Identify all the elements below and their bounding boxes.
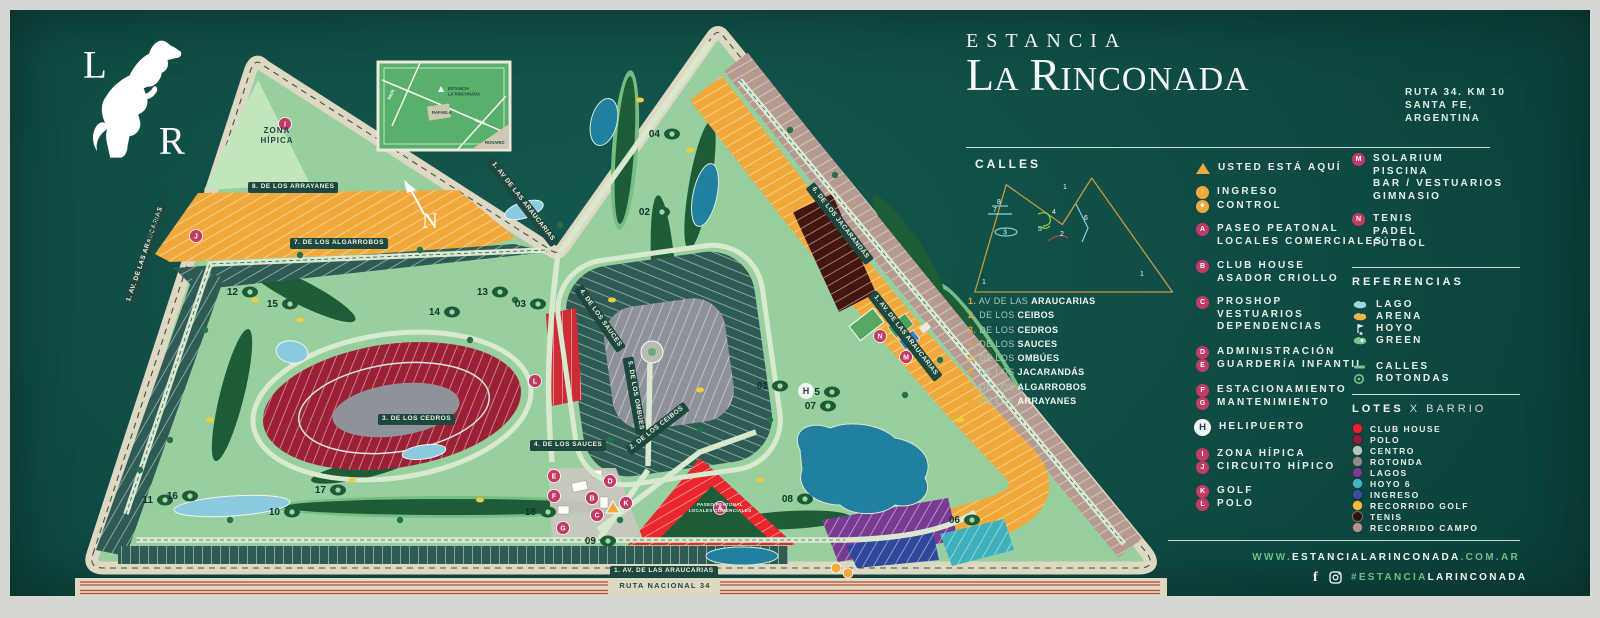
legend-usted: USTED ESTÁ AQUÍ [1196, 162, 1342, 175]
you-are-here-icon [1196, 163, 1210, 174]
legend-administracion: D ADMINISTRACIÓN [1196, 346, 1336, 359]
helipuerto-icon: H [1194, 419, 1211, 436]
street-item: 4. DE LOS SAUCES [968, 337, 1096, 351]
legend-guarderia: E GUARDERÍA INFANTIL [1196, 359, 1365, 372]
svg-text:1: 1 [1063, 184, 1067, 191]
ref-arena: ARENA [1352, 311, 1423, 324]
color-dot [1352, 434, 1363, 445]
marker-k-icon: K [1196, 485, 1209, 498]
legend-mantenimiento: G MANTENIMIENTO [1196, 397, 1330, 410]
legend-clubhouse: B CLUB HOUSEASADOR CRIOLLO [1196, 260, 1339, 285]
legend-polo: L POLO [1196, 498, 1254, 511]
control-icon: ★ [1196, 200, 1209, 213]
street-item: 7. DE LOS ALGARROBOS [968, 380, 1096, 394]
marker-n-icon: N [1352, 213, 1365, 226]
lote-rotonda: ROTONDA [1352, 456, 1423, 467]
street-item: 8. DE LOS ARRAYANES [968, 394, 1096, 408]
green-icon [1352, 336, 1368, 346]
ref-calles: CALLES [1352, 361, 1429, 374]
lote-recorrido-golf: RECORRIDO GOLF [1352, 500, 1469, 511]
divider [1352, 267, 1520, 268]
svg-text:6: 6 [1084, 215, 1088, 222]
color-dot [1352, 500, 1363, 511]
marker-j-icon: J [1196, 461, 1209, 474]
sand-icon [1352, 312, 1368, 322]
brand-eyebrow: ESTANCIA [966, 30, 1250, 53]
color-dot [1352, 478, 1363, 489]
poster-frame: 01 02 03 04 05 06 07 08 09 10 11 12 13 1… [0, 0, 1600, 618]
flag-icon [1352, 323, 1368, 335]
legend-solarium: M SOLARIUMPISCINABAR / VESTUARIOSGIMNASI… [1352, 153, 1503, 203]
poster: 01 02 03 04 05 06 07 08 09 10 11 12 13 1… [10, 10, 1590, 596]
svg-text:2: 2 [1060, 231, 1064, 238]
marker-g-icon: G [1196, 397, 1209, 410]
street-list: 1. AV DE LAS ARAUCARIAS 2. DE LOS CEIBOS… [968, 294, 1096, 408]
street-item: 1. AV DE LAS ARAUCARIAS [968, 294, 1096, 308]
color-dot [1352, 511, 1363, 522]
legend-proshop: C PROSHOPVESTUARIOSDEPENDENCIAS [1196, 296, 1323, 334]
ref-hoyo: HOYO [1352, 323, 1414, 336]
street-dash-icon [1352, 363, 1368, 371]
calles-title: CALLES [975, 157, 1041, 171]
ref-rotondas: ROTONDAS [1352, 373, 1451, 386]
marker-e-icon: E [1196, 359, 1209, 372]
legend-golf: K GOLF [1196, 485, 1254, 498]
marker-a-icon: A [1196, 223, 1209, 236]
lote-recorrido-campo: RECORRIDO CAMPO [1352, 522, 1478, 533]
street-item: 3. DE LOS CEDROS [968, 323, 1096, 337]
marker-l-icon: L [1196, 498, 1209, 511]
svg-text:4: 4 [1052, 209, 1056, 216]
svg-text:7: 7 [993, 207, 997, 214]
svg-text:8: 8 [997, 199, 1001, 206]
instagram-icon [1329, 571, 1342, 584]
divider [966, 147, 1490, 148]
lote-lagos: LAGOS [1352, 467, 1408, 478]
address-block: RUTA 34. KM 10SANTA FE,ARGENTINA [1405, 86, 1506, 125]
marker-f-icon: F [1196, 384, 1209, 397]
svg-text:1: 1 [982, 279, 986, 286]
lote-clubhouse: CLUB HOUSE [1352, 423, 1441, 434]
legend-tenis: N TENISPADELFÚTBOL [1352, 213, 1427, 251]
divider [1168, 540, 1520, 541]
marker-d-icon: D [1196, 346, 1209, 359]
lotes-title: LOTES X BARRIO [1352, 403, 1486, 415]
street-item: 5. DE LOS OMBÚES [968, 351, 1096, 365]
brand-block: ESTANCIA LARINCONADA [966, 30, 1250, 99]
lote-hoyo6: HOYO 6 [1352, 478, 1411, 489]
legend-circuito-hipico: J CIRCUITO HÍPICO [1196, 461, 1335, 474]
color-dot [1352, 467, 1363, 478]
street-item: 2. DE LOS CEIBOS [968, 308, 1096, 322]
legend-ingreso: ↑ INGRESO [1196, 186, 1279, 199]
color-dot [1352, 445, 1363, 456]
brand-title: LARINCONADA [966, 55, 1250, 99]
svg-text:1: 1 [1140, 271, 1144, 278]
marker-b-icon: B [1196, 260, 1209, 273]
divider [1352, 394, 1520, 395]
legend-panel: ESTANCIA LARINCONADA RUTA 34. KM 10SANTA… [10, 10, 1590, 596]
marker-i-icon: I [1196, 448, 1209, 461]
social-row: f #ESTANCIALARINCONADA [1313, 571, 1527, 584]
ref-lago: LAGO [1352, 299, 1414, 312]
legend-control: ★ CONTROL [1196, 200, 1282, 213]
color-dot [1352, 522, 1363, 533]
color-dot [1352, 456, 1363, 467]
marker-c-icon: C [1196, 296, 1209, 309]
legend-estacionamiento: F ESTACIONAMIENTO [1196, 384, 1347, 397]
referencias-title: REFERENCIAS [1352, 276, 1464, 288]
roundabout-icon [1352, 373, 1368, 385]
lote-centro: CENTRO [1352, 445, 1415, 456]
lote-ingreso: INGRESO [1352, 489, 1420, 500]
calles-diagram: 1 8 7 3 4 5 6 2 1 1 [968, 170, 1193, 298]
ingreso-icon: ↑ [1196, 186, 1209, 199]
website-url: WWW.ESTANCIALARINCONADA.COM.AR [1168, 552, 1520, 563]
hashtag: #ESTANCIALARINCONADA [1351, 572, 1527, 583]
lote-tenis: TENIS [1352, 511, 1403, 522]
svg-text:5: 5 [1038, 226, 1042, 233]
lake-icon [1352, 300, 1368, 310]
legend-zona-hipica: I ZONA HÍPICA [1196, 448, 1306, 461]
color-dot [1352, 423, 1363, 434]
ref-green: GREEN [1352, 335, 1423, 348]
svg-text:3: 3 [1003, 230, 1007, 237]
facebook-icon: f [1313, 572, 1320, 584]
color-dot [1352, 489, 1363, 500]
street-item: 6. DE LOS JACARANDÁS [968, 365, 1096, 379]
lote-polo: POLO [1352, 434, 1400, 445]
legend-helipuerto: H HELIPUERTO [1194, 419, 1305, 436]
marker-m-icon: M [1352, 153, 1365, 166]
